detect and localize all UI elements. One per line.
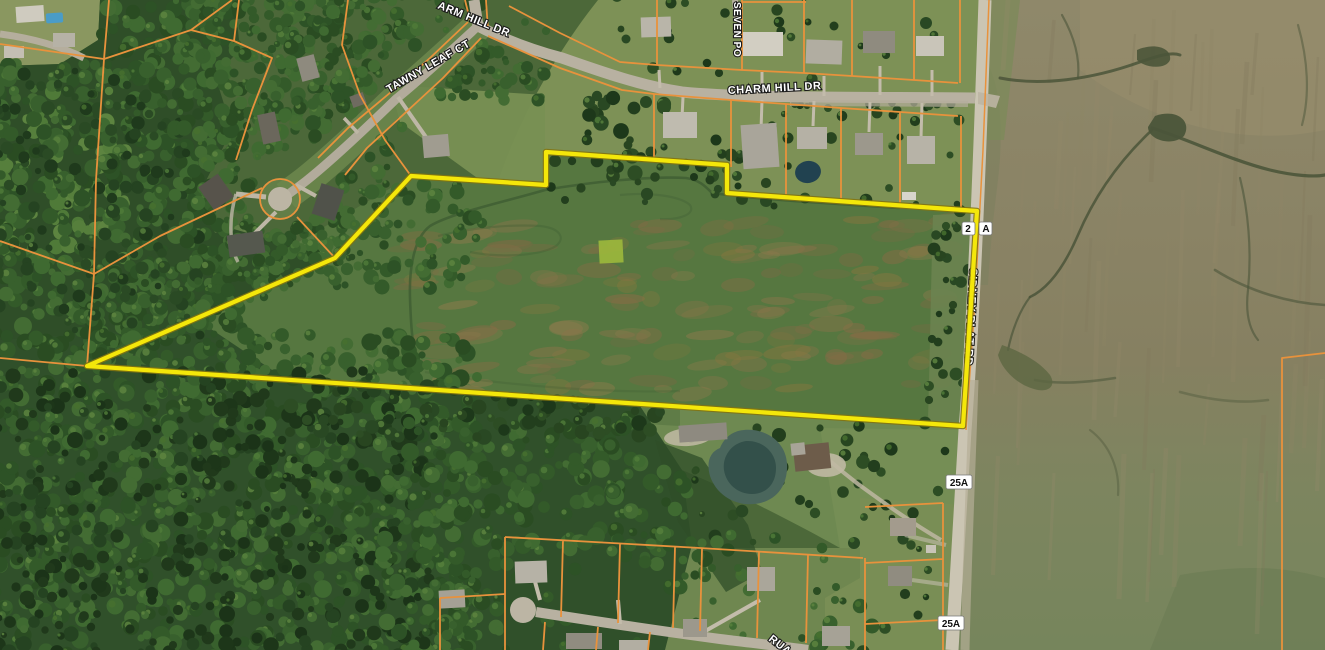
svg-text:A: A [982,224,989,235]
svg-text:2: 2 [965,224,971,235]
svg-text:25A: 25A [942,619,960,630]
svg-text:25A: 25A [950,478,968,489]
svg-text:SEVEN PO: SEVEN PO [731,2,742,57]
